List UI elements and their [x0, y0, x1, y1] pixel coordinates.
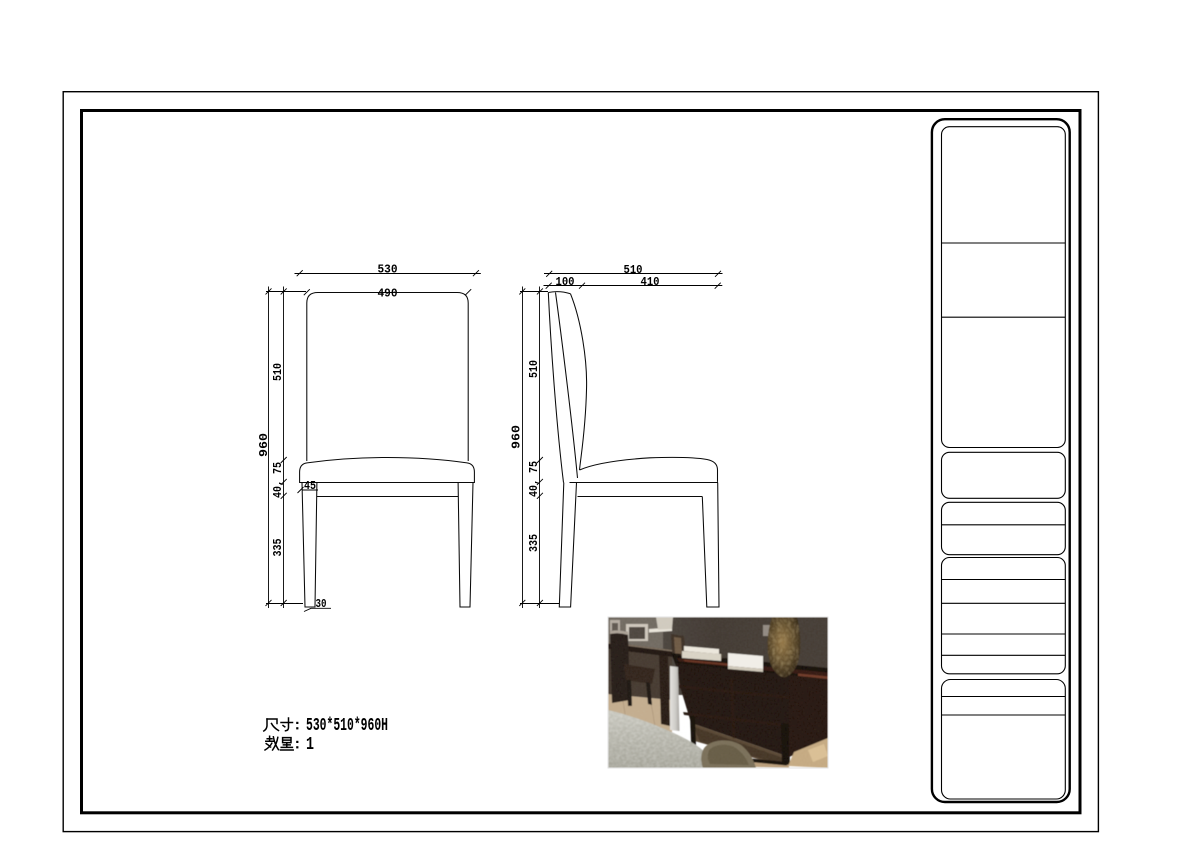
svg-text:1: 1 — [306, 735, 314, 755]
svg-text:100: 100 — [556, 276, 575, 289]
svg-text:510: 510 — [528, 360, 541, 378]
svg-text:45: 45 — [304, 480, 316, 493]
svg-text:530*510*960H: 530*510*960H — [306, 716, 388, 736]
svg-text:335: 335 — [272, 538, 285, 556]
svg-text:510: 510 — [272, 363, 285, 381]
svg-text:30: 30 — [316, 598, 327, 611]
svg-text:335: 335 — [528, 534, 541, 552]
svg-text:960: 960 — [258, 433, 271, 457]
svg-text:960: 960 — [511, 425, 524, 449]
svg-text:490: 490 — [378, 288, 398, 301]
svg-text:410: 410 — [641, 276, 660, 289]
svg-text:530: 530 — [378, 263, 398, 276]
svg-text:40, 75: 40, 75 — [528, 461, 541, 497]
svg-text:40, 75: 40, 75 — [272, 462, 285, 498]
